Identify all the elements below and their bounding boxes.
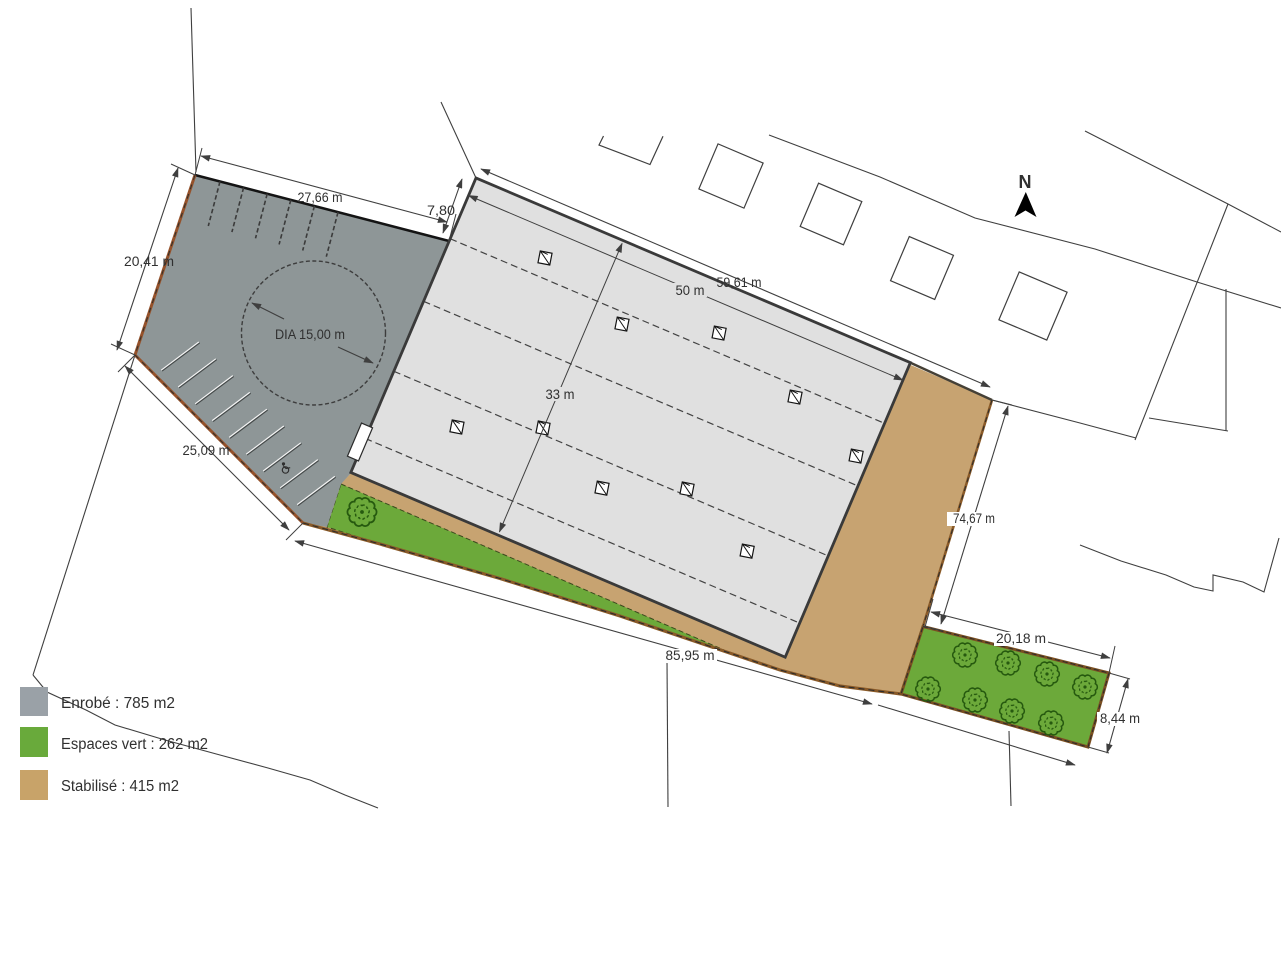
svg-text:Stabilisé : 415 m2: Stabilisé : 415 m2 [61,778,179,795]
svg-text:20,18 m: 20,18 m [996,630,1046,646]
svg-text:25,09 m: 25,09 m [183,442,230,458]
svg-text:Espaces vert : 262 m2: Espaces vert : 262 m2 [61,736,208,753]
svg-text:N: N [1019,172,1032,192]
svg-text:Enrobé : 785 m2: Enrobé : 785 m2 [61,695,175,712]
svg-text:8,44 m: 8,44 m [1100,710,1140,726]
svg-text:27,66 m: 27,66 m [298,189,343,205]
svg-text:50 m: 50 m [676,282,705,298]
svg-text:DIA 15,00 m: DIA 15,00 m [275,326,345,342]
svg-text:7,80: 7,80 [427,202,455,218]
svg-text:59,61 m: 59,61 m [717,274,762,290]
svg-text:74,67 m: 74,67 m [953,510,995,526]
svg-text:85,95 m: 85,95 m [666,647,715,663]
svg-text:20,41 m: 20,41 m [124,253,174,269]
svg-text:33 m: 33 m [546,386,575,402]
